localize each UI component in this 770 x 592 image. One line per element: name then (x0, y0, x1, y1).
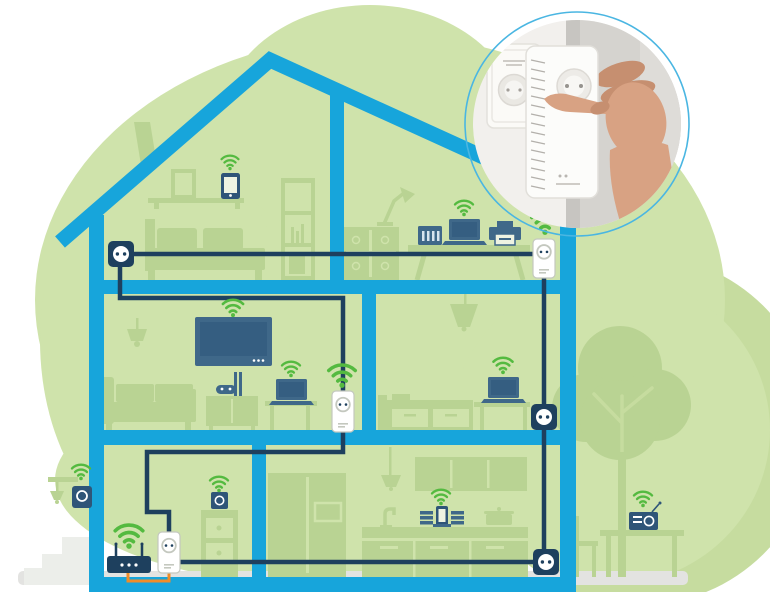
couch-arm (187, 389, 196, 422)
pendant-cord (136, 318, 139, 329)
kitchen-counter (362, 527, 528, 577)
couch-seat (101, 402, 196, 422)
couch-cushion (116, 384, 154, 402)
table-leg (606, 536, 611, 577)
left-wall (89, 215, 104, 592)
attic-wall (330, 90, 344, 288)
illustration-stage (0, 0, 770, 592)
living-tv (195, 317, 272, 366)
office-nas (418, 226, 442, 245)
table-top (600, 530, 684, 536)
pendant-cord (389, 447, 392, 475)
desk-top (408, 245, 530, 252)
right-wall (560, 190, 576, 592)
outlet-attic (108, 241, 134, 267)
adapter-office (533, 239, 555, 278)
house-network-illustration (0, 0, 770, 592)
lamp-cord (56, 482, 59, 491)
table-leg (672, 536, 677, 577)
adapter-cellar (158, 532, 180, 573)
cellar-furniture (201, 510, 238, 577)
attic-phone (221, 173, 240, 199)
chair-seat (574, 541, 598, 546)
living-room-wall (362, 294, 376, 430)
wall-shelf (48, 477, 78, 482)
cooking-pot (486, 514, 512, 525)
tree-trunk (618, 452, 626, 577)
ground-floor (89, 577, 576, 592)
chair-leg (592, 546, 596, 577)
adapter-living (332, 391, 354, 432)
middle-floor (89, 430, 576, 445)
dresser-item (392, 394, 410, 400)
upper-floor (89, 280, 576, 294)
cellar-speaker (211, 492, 228, 509)
desk-lamp-base (377, 222, 393, 226)
outdoor-wall-speaker (72, 486, 92, 508)
pendant-cord (464, 294, 467, 304)
outlet-kitchen (533, 549, 559, 575)
dresser-side (378, 395, 387, 432)
pillow (157, 228, 197, 250)
game-controller (216, 385, 236, 394)
photo-adapter (526, 46, 598, 198)
upper-cabinets (415, 457, 527, 491)
pillow (203, 228, 243, 250)
outlet-sitting-room (531, 404, 557, 430)
cellar-wall (252, 445, 266, 577)
bed-mattress (145, 248, 265, 270)
